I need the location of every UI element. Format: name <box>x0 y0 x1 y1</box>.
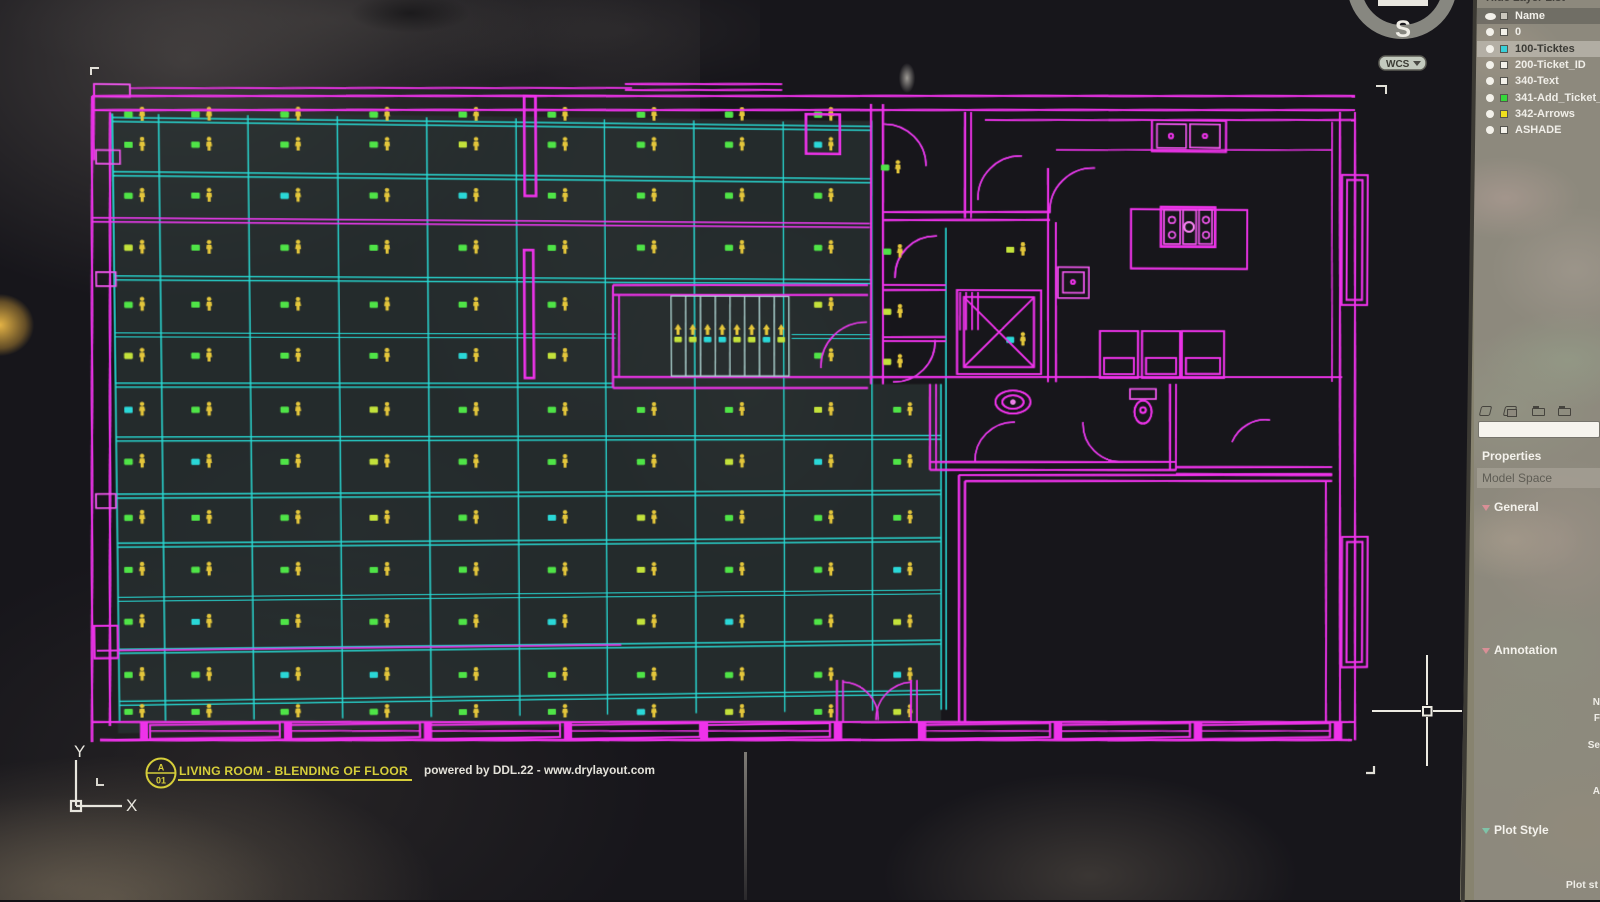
svg-text:01: 01 <box>156 776 166 786</box>
svg-text:X: X <box>126 796 137 815</box>
svg-text:powered by DDL.22 - www.drylay: powered by DDL.22 - www.drylayout.com <box>424 763 655 777</box>
svg-text:A: A <box>158 763 165 773</box>
svg-text:Y: Y <box>74 742 85 761</box>
svg-text:WCS: WCS <box>1386 59 1410 70</box>
svg-text:S: S <box>1395 16 1411 43</box>
svg-text:LIVING ROOM - BLENDING OF FLOO: LIVING ROOM - BLENDING OF FLOOR <box>179 764 408 778</box>
